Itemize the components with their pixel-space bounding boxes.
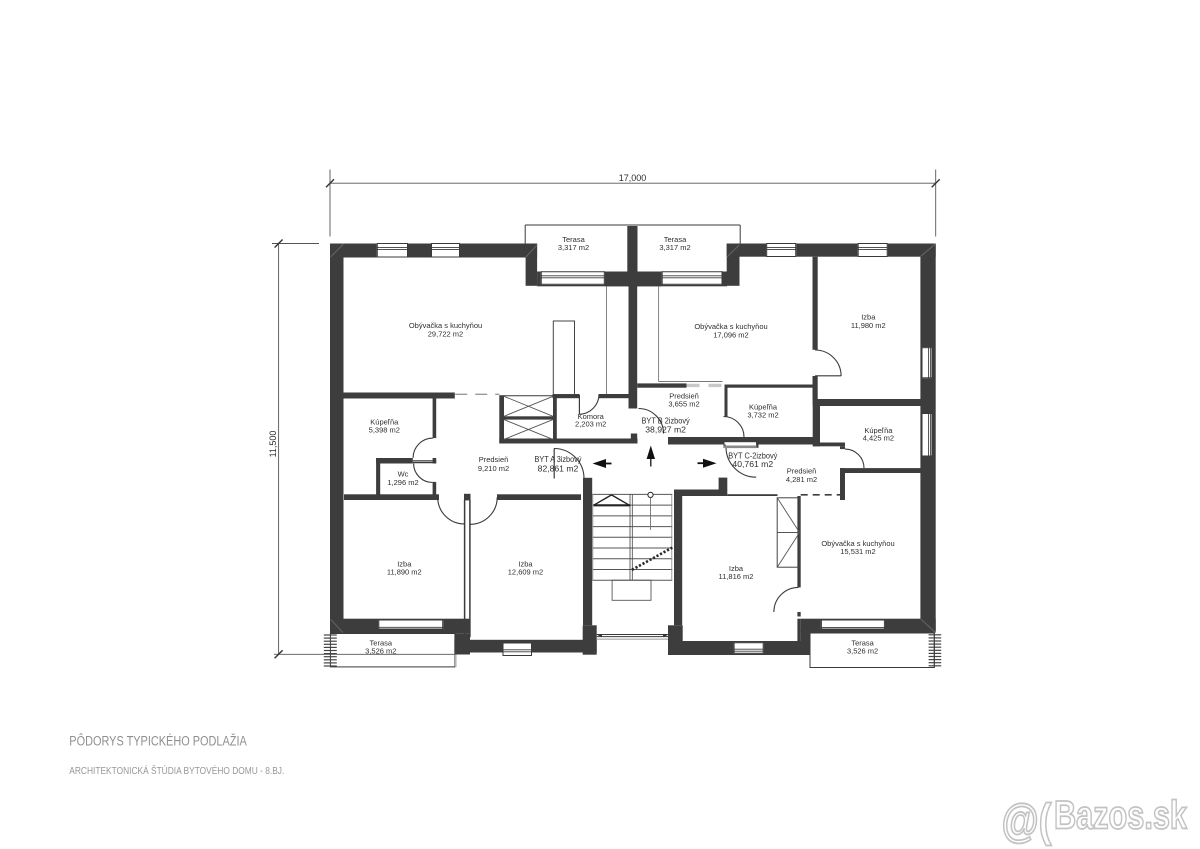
svg-text:ARCHITEKTONICKÁ ŠTÚDIA BYTOVÉH: ARCHITEKTONICKÁ ŠTÚDIA BYTOVÉHO DOMU - 8… (69, 764, 284, 777)
svg-text:3,526 m2: 3,526 m2 (365, 647, 396, 656)
svg-text:Obývačka s kuchyňou: Obývačka s kuchyňou (409, 321, 482, 330)
svg-text:3,317 m2: 3,317 m2 (659, 243, 690, 252)
svg-text:4,425 m2: 4,425 m2 (863, 434, 894, 443)
svg-text:40,761 m2: 40,761 m2 (732, 460, 773, 469)
svg-text:9,210 m2: 9,210 m2 (478, 464, 509, 473)
svg-text:29,722 m2: 29,722 m2 (428, 330, 463, 339)
svg-text:11,890 m2: 11,890 m2 (387, 567, 422, 576)
svg-text:4,281 m2: 4,281 m2 (786, 475, 817, 484)
svg-text:12,609 m2: 12,609 m2 (508, 567, 543, 576)
svg-text:11,816 m2: 11,816 m2 (719, 572, 754, 581)
svg-text:BYT B 2izbový: BYT B 2izbový (642, 417, 691, 426)
svg-text:1,296 m2: 1,296 m2 (387, 478, 418, 487)
svg-text:2,203 m2: 2,203 m2 (575, 420, 606, 429)
svg-text:Bazos.sk: Bazos.sk (1054, 794, 1188, 838)
svg-text:82,861 m2: 82,861 m2 (538, 464, 579, 473)
svg-text:3,317 m2: 3,317 m2 (558, 243, 589, 252)
svg-text:5,398 m2: 5,398 m2 (369, 425, 400, 434)
svg-text:15,531 m2: 15,531 m2 (840, 547, 875, 556)
svg-text:3,732 m2: 3,732 m2 (747, 411, 778, 420)
svg-text:Obývačka s kuchyňou: Obývačka s kuchyňou (694, 322, 767, 331)
svg-text:PÔDORYS TYPICKÉHO PODLAŽIA: PÔDORYS TYPICKÉHO PODLAŽIA (69, 734, 247, 749)
svg-text:17,000: 17,000 (619, 173, 647, 183)
svg-text:3,526 m2: 3,526 m2 (847, 647, 878, 656)
svg-text:17,096 m2: 17,096 m2 (713, 331, 748, 340)
svg-text:11,500: 11,500 (268, 431, 278, 458)
svg-text:BYT A 3izbový: BYT A 3izbový (535, 455, 583, 464)
svg-text:3,655 m2: 3,655 m2 (668, 399, 699, 408)
svg-text:38,927 m2: 38,927 m2 (645, 425, 686, 434)
svg-text:11,980 m2: 11,980 m2 (851, 321, 886, 330)
svg-text:@(: @( (1002, 794, 1053, 846)
